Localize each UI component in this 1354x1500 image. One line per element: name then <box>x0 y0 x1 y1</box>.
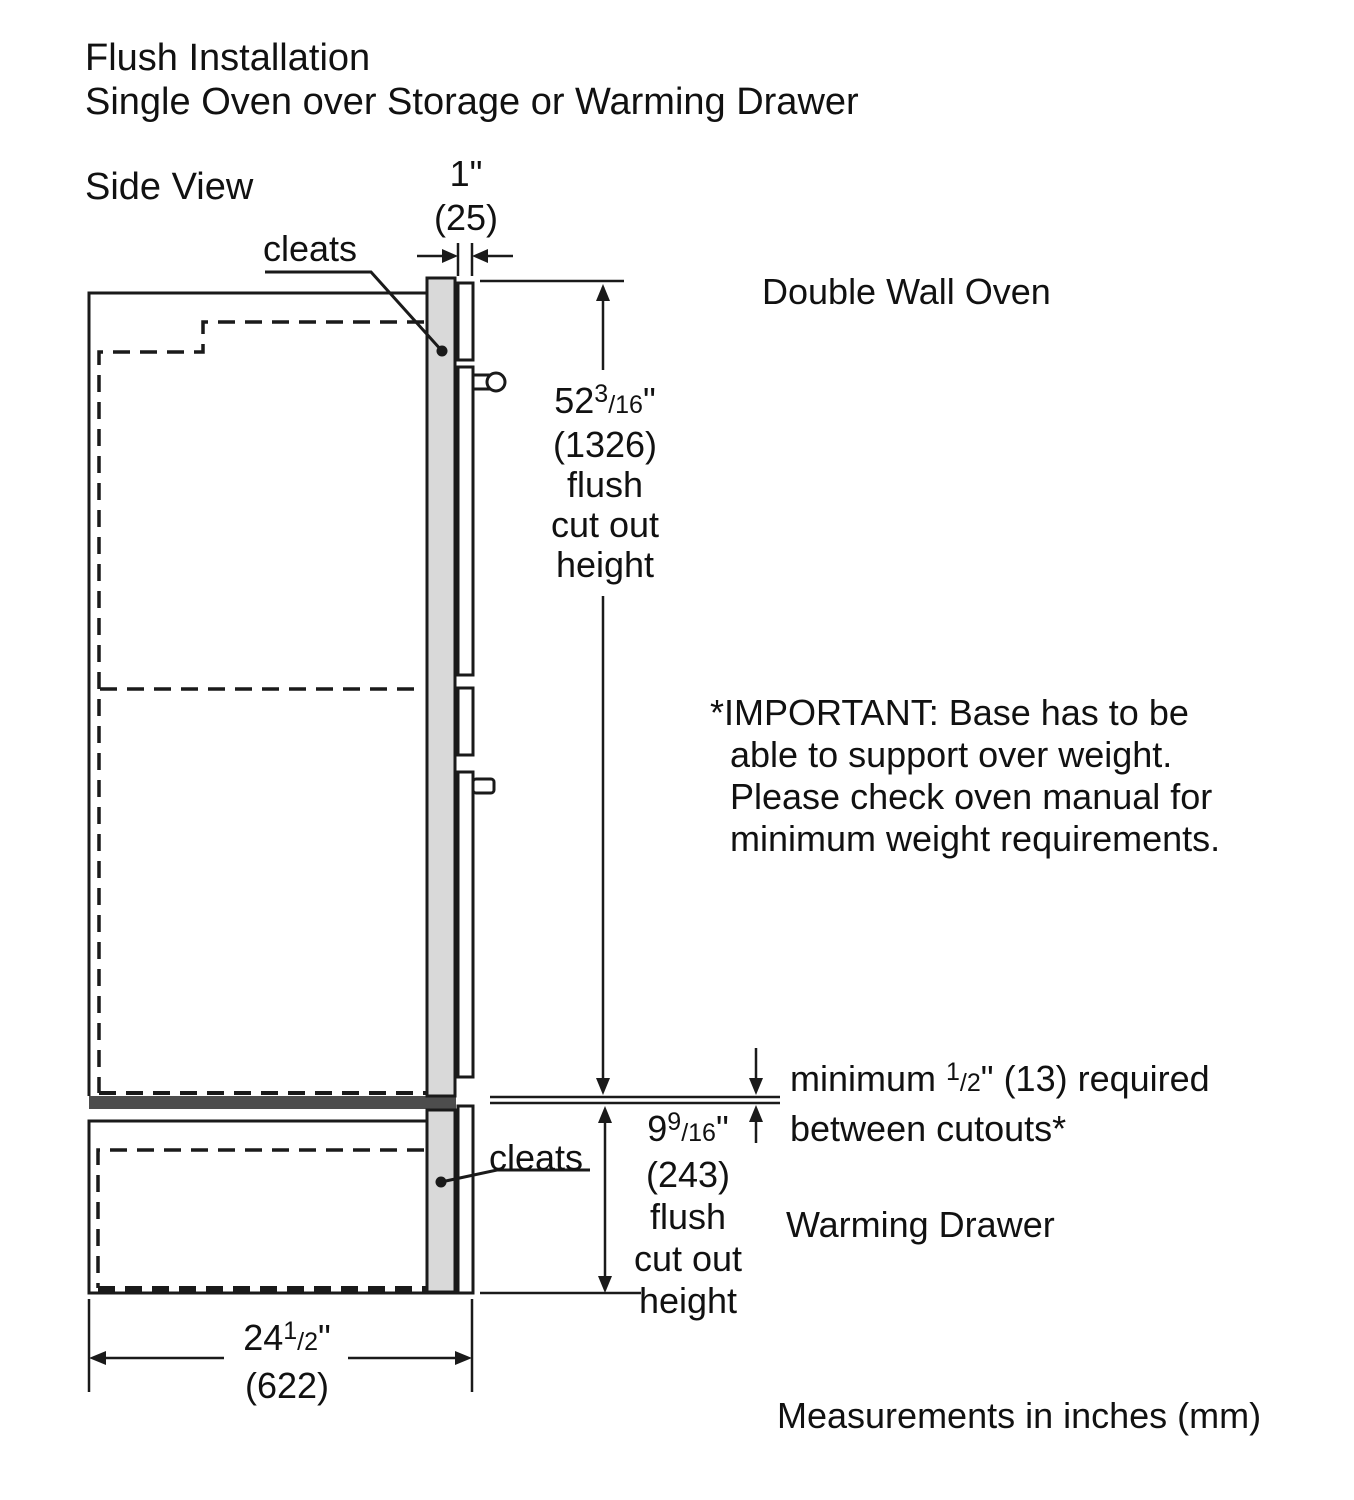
dim-24-label: 241/2" (622) <box>243 1316 331 1408</box>
page-title-line2: Single Oven over Storage or Warming Draw… <box>85 80 859 124</box>
side-view-label: Side View <box>85 165 253 209</box>
double-wall-oven-label: Double Wall Oven <box>762 271 1051 313</box>
cleats-lower-leader-dot <box>436 1177 447 1188</box>
dim-9-label: 99/16" (243) flush cut out height <box>634 1108 742 1322</box>
important-note: *IMPORTANT: Base has to be able to suppo… <box>710 692 1220 860</box>
min-gap-arrowhead-up <box>749 1105 763 1122</box>
min-gap-note-line1: minimum 1/2" (13) required <box>790 1056 1210 1106</box>
page-title-line1: Flush Installation <box>85 36 859 80</box>
oven-front-upper-door <box>458 367 473 675</box>
oven-handle-upper-cap <box>487 373 505 391</box>
important-note-line1: *IMPORTANT: Base has to be <box>710 692 1220 734</box>
dim-24-arrowhead-left <box>89 1351 106 1365</box>
oven-front-lower-door <box>458 772 473 1077</box>
dim-52-desc3: height <box>551 545 659 585</box>
cleats-upper-label: cleats <box>263 228 357 270</box>
important-note-line3: Please check oven manual for <box>710 776 1220 818</box>
dim-24-mm: (622) <box>243 1364 331 1408</box>
dim-1in-arrowhead-right <box>472 249 488 263</box>
oven-front-control-panel <box>458 688 473 755</box>
dim-52-arrowhead-down <box>596 1078 610 1095</box>
dim-1in-inches: 1" <box>434 152 498 196</box>
dim-24-arrowhead-right <box>455 1351 472 1365</box>
dim-9-mm: (243) <box>634 1154 742 1196</box>
dim-24-inches: 241/2" <box>243 1316 331 1364</box>
dim-9-arrowhead-down <box>598 1276 612 1293</box>
dim-9-arrowhead-up <box>598 1106 612 1123</box>
upper-cabinet-outline <box>89 293 426 1096</box>
dim-52-inches: 523/16" <box>551 381 659 425</box>
base-support-bar <box>89 1096 456 1109</box>
cleat-upper <box>427 278 455 1096</box>
important-note-line2: able to support over weight. <box>710 734 1220 776</box>
dim-52-arrowhead-up <box>596 284 610 301</box>
oven-cavity-dashed-outline <box>99 322 424 1093</box>
drawer-front-panel <box>458 1106 473 1293</box>
dim-1in-arrowhead-left <box>442 249 458 263</box>
dim-9-desc2: cut out <box>634 1238 742 1280</box>
cleats-lower-label: cleats <box>489 1137 583 1179</box>
dim-52-desc2: cut out <box>551 505 659 545</box>
cleat-lower <box>427 1110 455 1292</box>
drawer-cavity-dashed-outline <box>98 1150 424 1288</box>
dim-1in-label: 1" (25) <box>434 152 498 240</box>
min-gap-note: minimum 1/2" (13) required between cutou… <box>790 1056 1210 1152</box>
warming-drawer-label: Warming Drawer <box>786 1204 1055 1246</box>
installation-diagram-page: Flush Installation Single Oven over Stor… <box>0 0 1354 1500</box>
oven-front-top-trim <box>458 283 473 360</box>
dim-9-desc3: height <box>634 1280 742 1322</box>
min-gap-arrowhead-down <box>749 1078 763 1095</box>
cleats-upper-leader-dot <box>437 346 448 357</box>
dim-9-inches: 99/16" <box>634 1108 742 1154</box>
dim-1in-mm: (25) <box>434 196 498 240</box>
dim-52-label: 523/16" (1326) flush cut out height <box>551 381 659 585</box>
oven-handle-lower <box>473 779 494 793</box>
dim-9-desc1: flush <box>634 1196 742 1238</box>
dim-52-desc1: flush <box>551 465 659 505</box>
cleats-upper-leader <box>265 272 442 351</box>
min-gap-note-line2: between cutouts* <box>790 1106 1210 1152</box>
footer-note: Measurements in inches (mm) <box>777 1395 1261 1437</box>
dim-52-mm: (1326) <box>551 425 659 465</box>
page-title: Flush Installation Single Oven over Stor… <box>85 36 859 124</box>
warming-drawer-outline <box>89 1121 473 1293</box>
important-note-line4: minimum weight requirements. <box>710 818 1220 860</box>
